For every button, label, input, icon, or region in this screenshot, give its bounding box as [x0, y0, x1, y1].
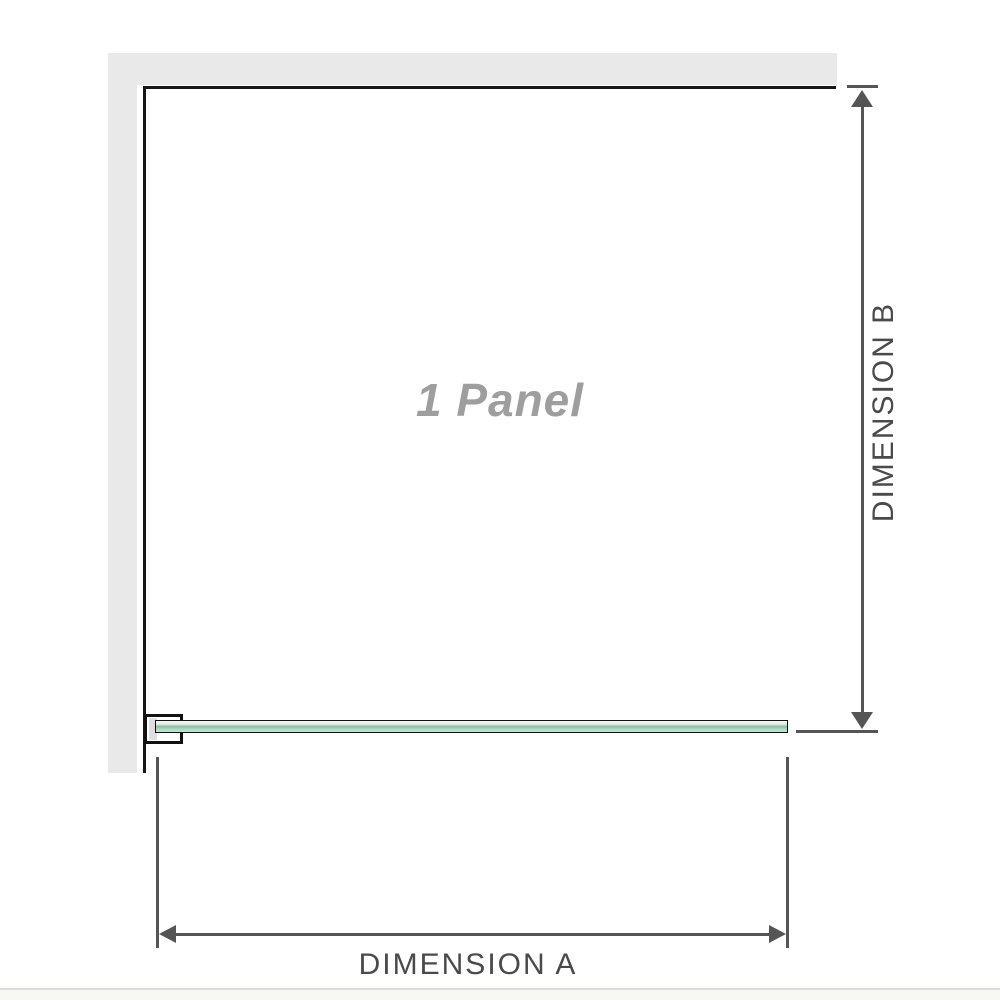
dimension-b-label: DIMENSION B [868, 262, 900, 562]
dimension-a-right-extension-line [786, 757, 789, 948]
bottom-strip [0, 990, 1000, 1000]
arrow-right-icon [769, 925, 786, 943]
glass-panel-strip [155, 720, 788, 733]
arrow-left-icon [159, 925, 176, 943]
dimension-a-left-extension-line [156, 757, 159, 948]
panel-label: 1 Panel [350, 372, 650, 428]
dimension-b-line [861, 98, 864, 720]
panel-left-edge [143, 86, 146, 773]
dimension-a-label: DIMENSION A [318, 948, 618, 982]
diagram-canvas: 1 Panel DIMENSION B DIMENSION A [0, 0, 1000, 1000]
dimension-b-bottom-tick [796, 730, 878, 733]
arrow-down-icon [851, 712, 873, 729]
panel-top-edge [143, 86, 836, 89]
dimension-a-line [168, 933, 778, 936]
arrow-up-icon [851, 90, 873, 107]
dimension-b-top-tick [847, 85, 878, 88]
wall-left-bar [108, 53, 137, 773]
wall-top-bar [108, 53, 837, 85]
